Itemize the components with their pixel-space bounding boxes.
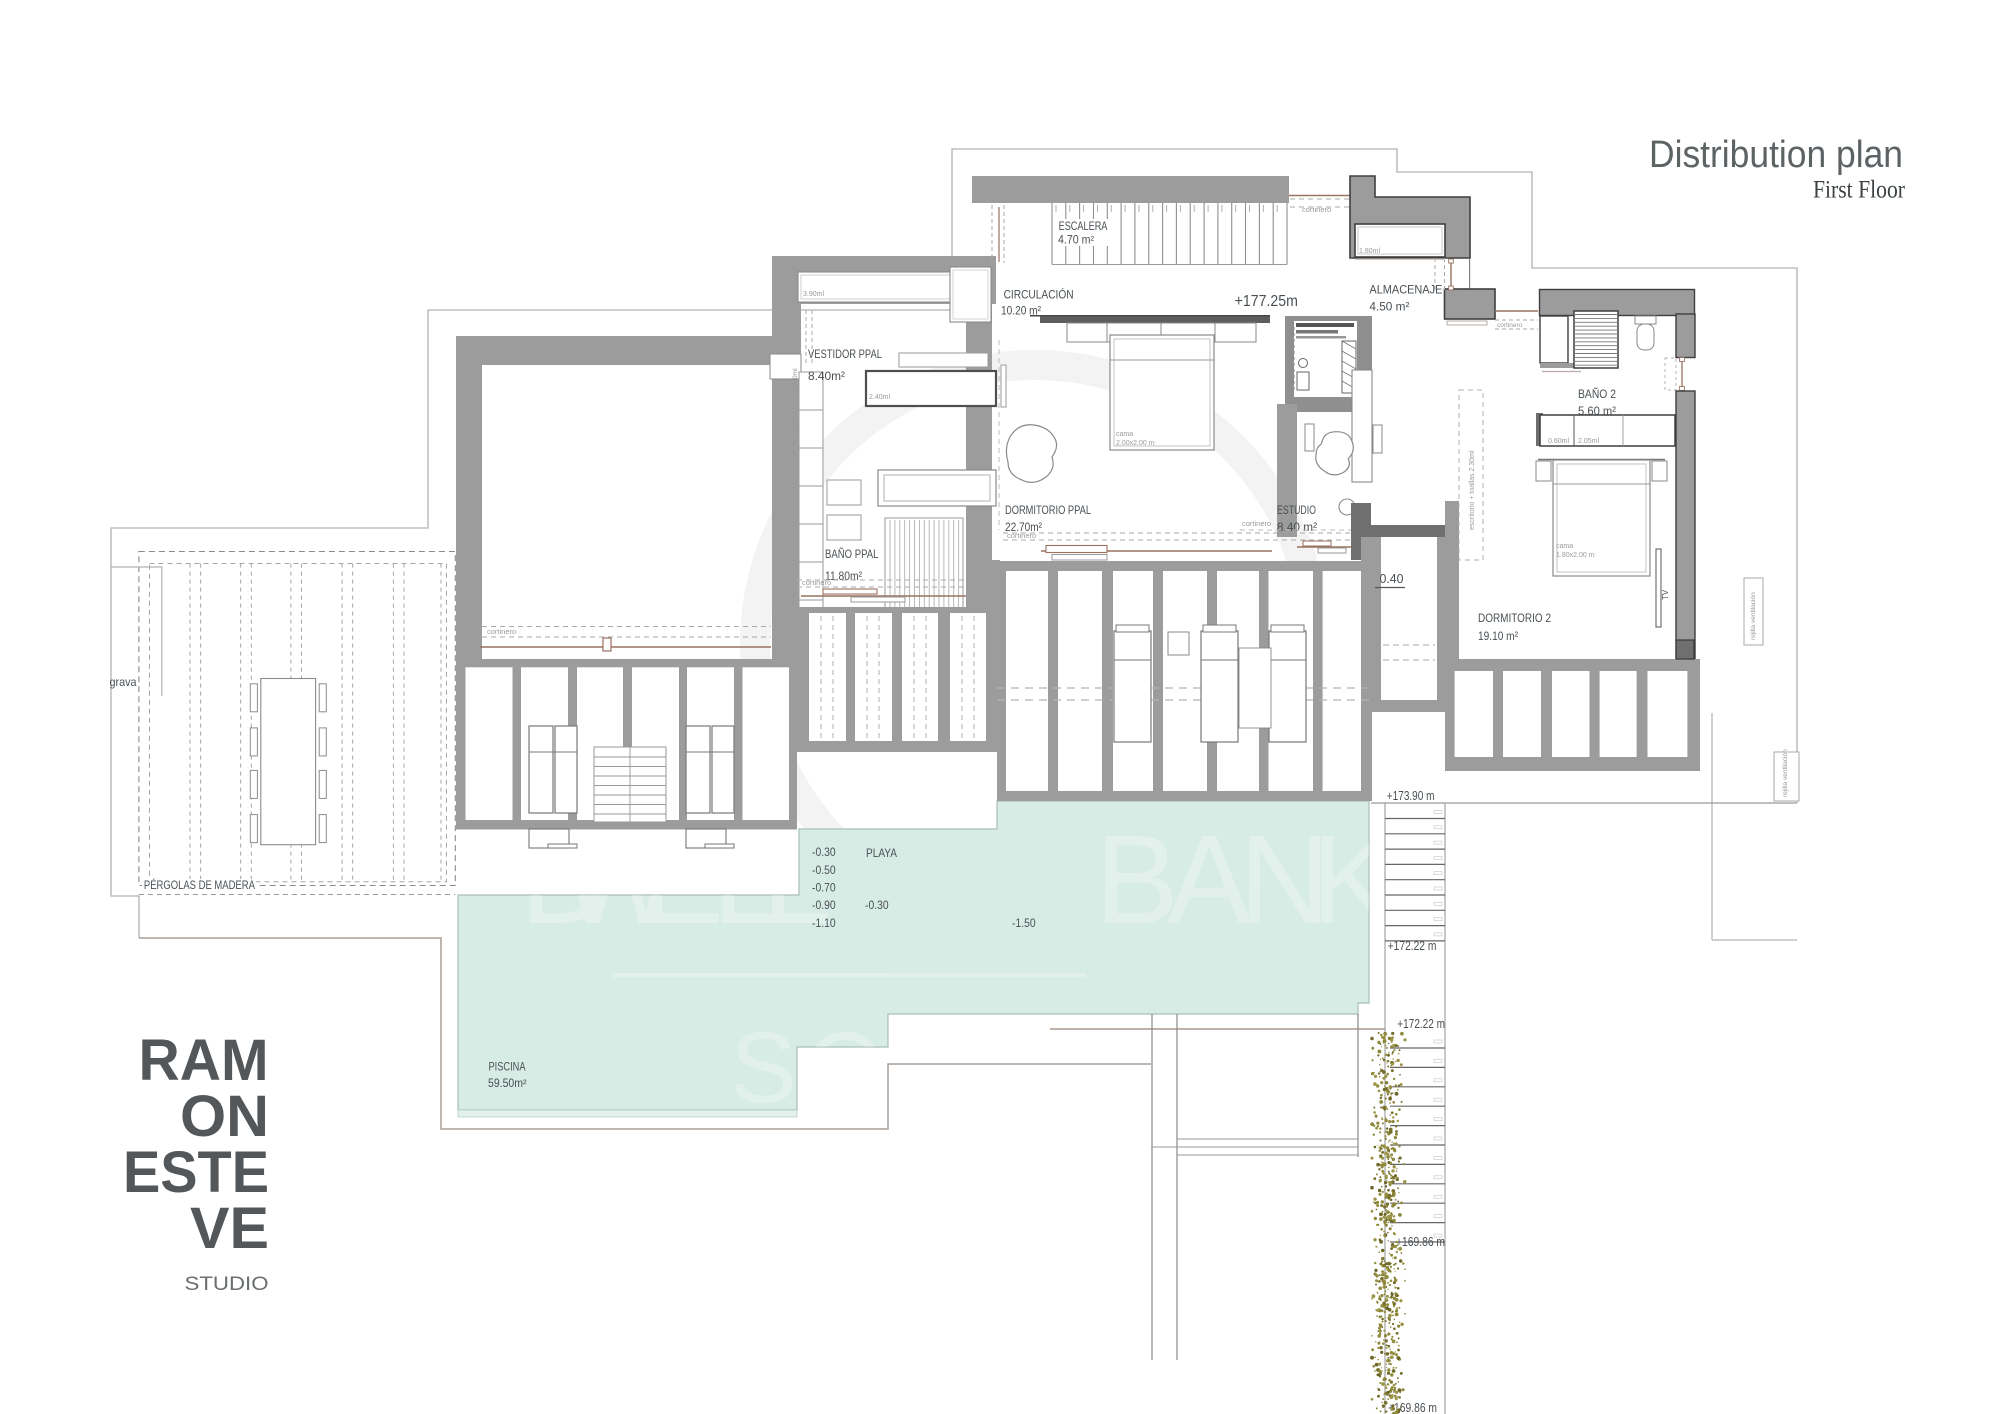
svg-text:4.50 m²: 4.50 m²	[1369, 300, 1409, 314]
svg-text:cama: cama	[1556, 543, 1573, 550]
svg-text:Distribution plan: Distribution plan	[1649, 134, 1903, 176]
svg-text:2.90ml: 2.90ml	[792, 410, 799, 430]
svg-text:cortinero: cortinero	[1302, 205, 1331, 214]
svg-text:VE: VE	[190, 1196, 269, 1261]
svg-text:ESCALERA: ESCALERA	[1059, 221, 1108, 233]
svg-text:DORMITORIO 2: DORMITORIO 2	[1478, 611, 1551, 625]
svg-text:-0.90: -0.90	[812, 898, 836, 912]
svg-text:PISCINA: PISCINA	[489, 1062, 526, 1074]
svg-text:0.60ml: 0.60ml	[792, 368, 799, 388]
svg-text:rejilla ventilación: rejilla ventilación	[1782, 749, 1789, 797]
svg-text:0.40: 0.40	[1380, 571, 1404, 586]
svg-text:rejilla ventilación: rejilla ventilación	[1750, 592, 1757, 640]
svg-text:TV: TV	[1661, 589, 1670, 600]
svg-text:cama: cama	[1116, 431, 1133, 438]
svg-text:escritorio + toallas 2.30ml: escritorio + toallas 2.30ml	[1469, 450, 1476, 530]
svg-text:-1.50: -1.50	[1012, 916, 1036, 930]
svg-text:-1.10: -1.10	[812, 916, 836, 930]
svg-text:19.10 m²: 19.10 m²	[1478, 629, 1518, 643]
svg-text:cortinero: cortinero	[802, 578, 831, 587]
svg-text:+169.86 m: +169.86 m	[1396, 1235, 1445, 1249]
svg-text:4.70 m²: 4.70 m²	[1058, 235, 1094, 247]
svg-text:-0.70: -0.70	[812, 881, 836, 895]
svg-text:DORMITORIO PPAL: DORMITORIO PPAL	[1005, 503, 1091, 517]
svg-text:+177.25m: +177.25m	[1235, 293, 1298, 310]
svg-text:cortinero: cortinero	[487, 627, 516, 636]
svg-text:-0.30: -0.30	[812, 845, 836, 859]
svg-text:First Floor: First Floor	[1813, 177, 1906, 204]
svg-text:cortinero: cortinero	[1242, 519, 1271, 528]
svg-text:cortinero: cortinero	[1497, 322, 1523, 329]
svg-text:8.40 m²: 8.40 m²	[1277, 520, 1317, 534]
svg-text:+172.22 m: +172.22 m	[1397, 1017, 1445, 1031]
svg-text:2.05ml: 2.05ml	[1578, 438, 1599, 445]
svg-text:1.80ml: 1.80ml	[1359, 248, 1380, 255]
svg-text:PÉRGOLAS DE MADERA: PÉRGOLAS DE MADERA	[144, 877, 255, 892]
svg-text:BAÑO 2: BAÑO 2	[1578, 387, 1616, 401]
svg-text:BAÑO PPAL: BAÑO PPAL	[825, 547, 879, 561]
svg-text:2.00x2.00 m: 2.00x2.00 m	[1116, 440, 1155, 447]
svg-text:VESTIDOR PPAL: VESTIDOR PPAL	[808, 347, 882, 361]
svg-text:STUDIO: STUDIO	[185, 1273, 269, 1295]
svg-text:-0.30: -0.30	[865, 898, 889, 912]
svg-text:CIRCULACIÓN: CIRCULACIÓN	[1004, 287, 1074, 302]
svg-text:PLAYA: PLAYA	[866, 848, 897, 860]
svg-text:8.40m²: 8.40m²	[808, 369, 845, 383]
svg-text:0.60ml: 0.60ml	[1548, 438, 1569, 445]
svg-text:ESTUDIO: ESTUDIO	[1277, 503, 1316, 517]
svg-text:+173.90 m: +173.90 m	[1387, 789, 1435, 803]
svg-text:1.80x2.00 m: 1.80x2.00 m	[1556, 552, 1595, 559]
svg-text:59.50m²: 59.50m²	[488, 1078, 527, 1090]
svg-text:cortinero: cortinero	[1007, 531, 1036, 540]
svg-text:ALMACENAJE: ALMACENAJE	[1369, 282, 1442, 296]
svg-text:+172.22 m: +172.22 m	[1388, 939, 1437, 953]
svg-text:2.40ml: 2.40ml	[869, 394, 890, 401]
svg-text:3.90ml: 3.90ml	[803, 291, 824, 298]
svg-text:-0.50: -0.50	[812, 863, 836, 877]
svg-text:grava: grava	[110, 675, 137, 689]
